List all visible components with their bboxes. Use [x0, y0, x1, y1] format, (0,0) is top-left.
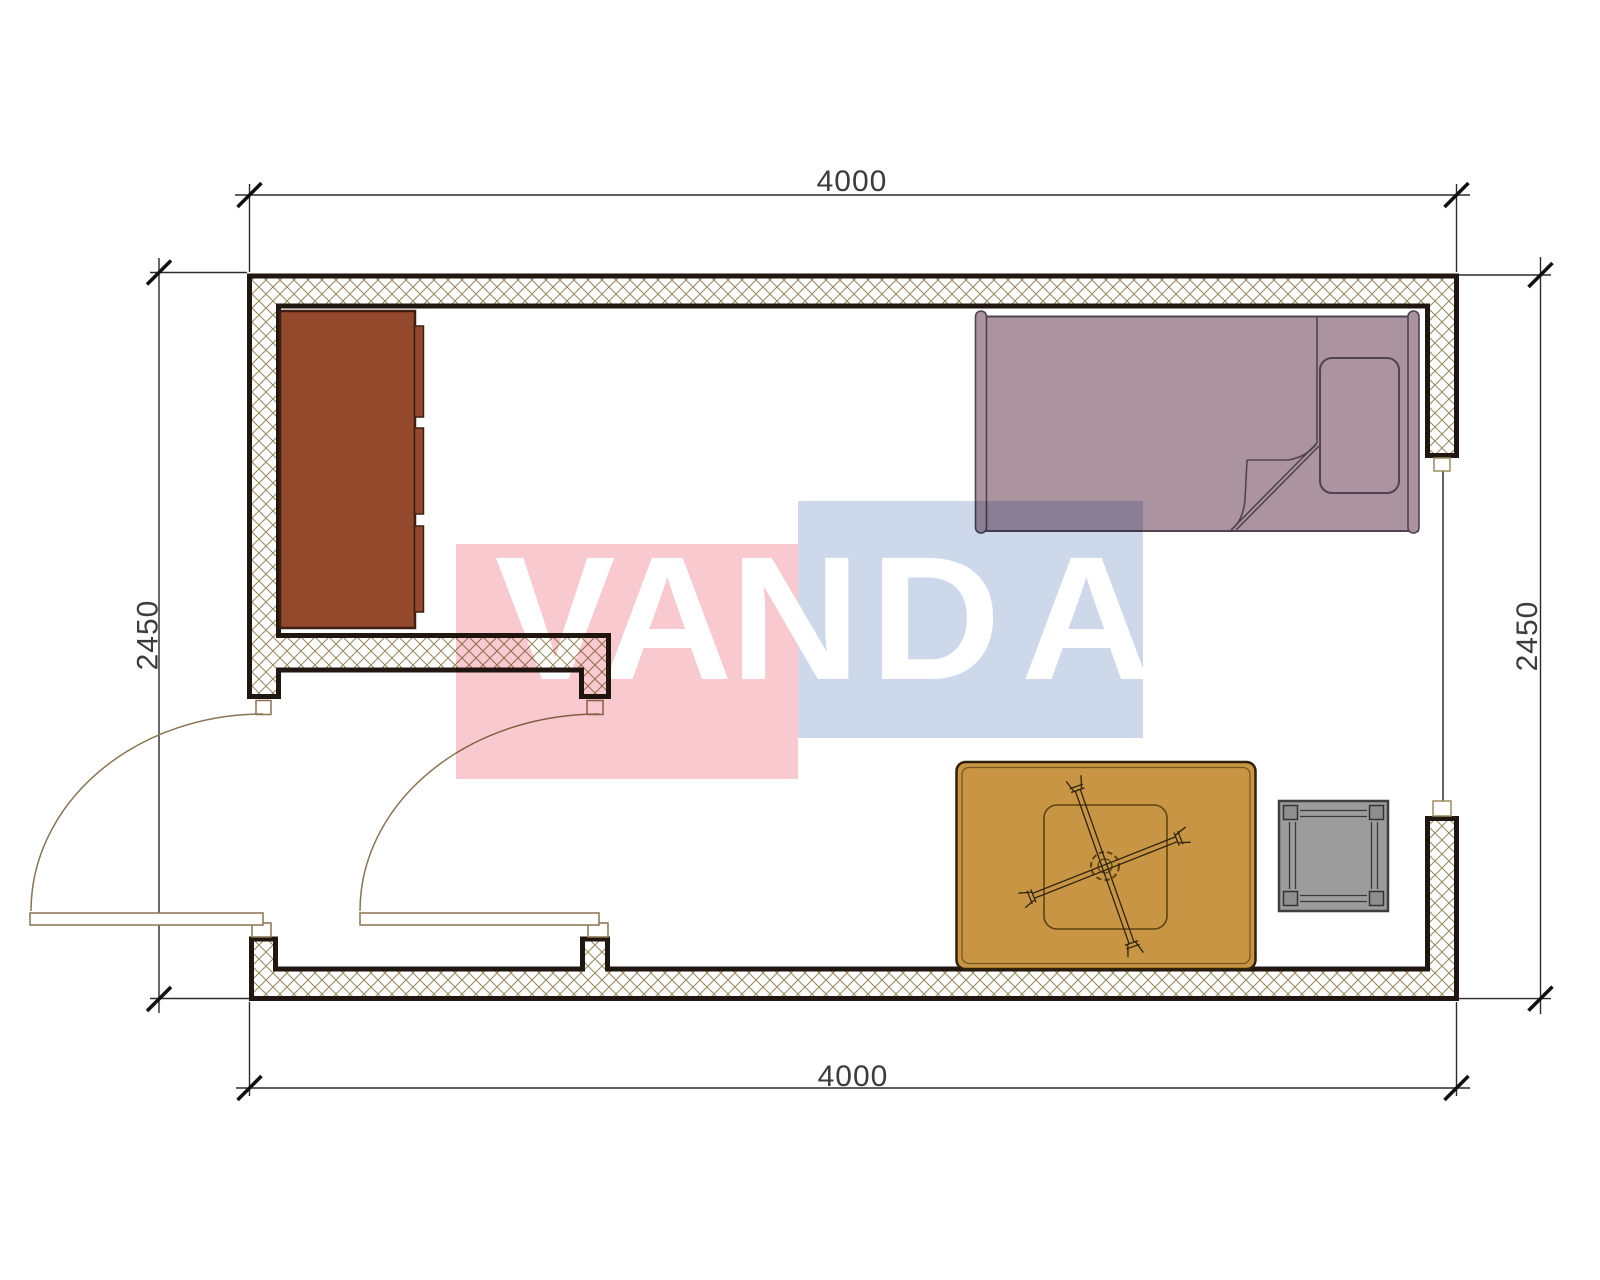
svg-text:4000: 4000 [818, 1060, 889, 1093]
svg-text:2450: 2450 [132, 600, 165, 671]
svg-text:4000: 4000 [817, 165, 888, 198]
svg-text:2450: 2450 [1511, 601, 1544, 672]
